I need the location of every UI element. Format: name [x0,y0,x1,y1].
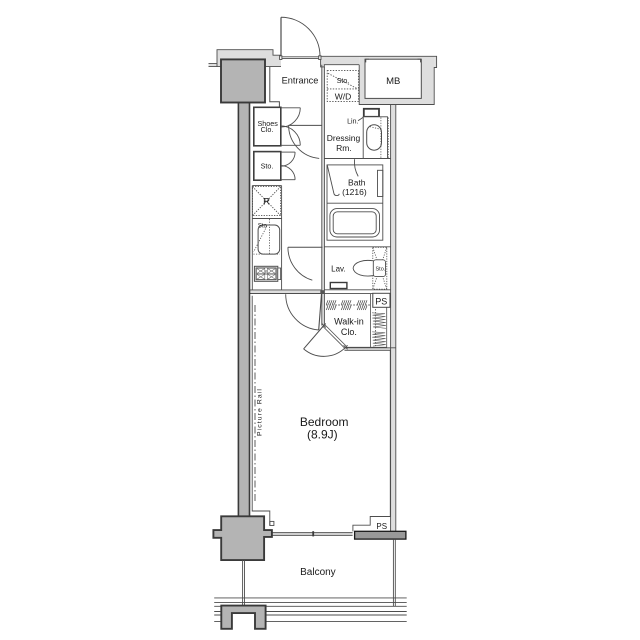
svg-text:Lin.: Lin. [347,119,358,126]
svg-text:Rm.: Rm. [336,143,352,153]
svg-text:Sto: Sto [258,223,268,229]
svg-text:Sto.: Sto. [376,266,386,272]
svg-text:(1216): (1216) [342,187,367,197]
svg-text:Bath: Bath [348,177,366,187]
svg-text:PS: PS [375,297,387,307]
svg-text:Clo.: Clo. [261,125,274,134]
svg-text:MB: MB [386,76,400,87]
svg-text:Walk-in: Walk-in [334,317,364,327]
svg-text:Picture Rail: Picture Rail [257,388,264,436]
svg-text:(8.9J): (8.9J) [307,428,338,442]
svg-text:W/D: W/D [335,92,352,102]
svg-text:Lav.: Lav. [331,264,346,273]
svg-text:Balcony: Balcony [300,567,336,578]
svg-text:Clo.: Clo. [341,327,357,337]
svg-text:PS: PS [376,522,387,531]
svg-text:Entrance: Entrance [282,75,319,85]
svg-text:Dressing: Dressing [327,133,361,143]
svg-text:R: R [263,197,270,208]
svg-text:Sto.: Sto. [337,78,350,85]
svg-text:Sto.: Sto. [261,162,274,171]
